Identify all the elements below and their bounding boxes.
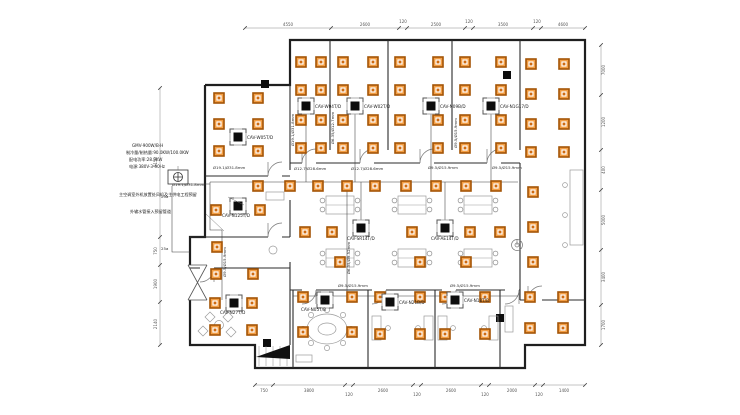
dim-value: 6150	[153, 156, 158, 167]
diffuser-icon	[433, 115, 443, 125]
diffuser-icon	[395, 57, 405, 67]
desk	[570, 170, 583, 245]
unit-label: CAV-N05T/B	[301, 307, 326, 312]
unit-label: CAV-SR14T/D	[347, 236, 375, 241]
workstation-cluster	[392, 249, 432, 267]
spec-line: 电源:380V-3-50Hz	[129, 163, 165, 169]
diffuser-icon	[440, 329, 450, 339]
pipe-label: Ø19.1/Ø31.8mm	[290, 114, 295, 147]
diffuser-icon	[296, 57, 306, 67]
diffuser-icon	[559, 147, 569, 157]
cassette-unit-icon	[423, 98, 439, 114]
dim-value: 2600	[360, 22, 371, 27]
diffuser-icon	[528, 257, 538, 267]
diffuser-icon	[526, 89, 536, 99]
diffuser-icon	[525, 292, 535, 302]
diffuser-icon	[407, 227, 417, 237]
unit-label: CAV-AE14T/D	[431, 236, 459, 241]
dim-value: 120	[345, 392, 353, 397]
diffuser-icon	[214, 119, 224, 129]
diffuser-icon	[253, 119, 263, 129]
diffuser-icon	[526, 59, 536, 69]
pipe-label: Ø9.5/Ø15.9mm	[492, 165, 522, 170]
column	[503, 71, 511, 79]
dim-value: 7000	[601, 64, 606, 75]
column	[261, 80, 269, 88]
diffuser-icon	[495, 227, 505, 237]
diffuser-icon	[559, 59, 569, 69]
diffuser-icon	[285, 181, 295, 191]
unit-label: CAV-N21B/D	[399, 300, 425, 305]
diffuser-icon	[375, 329, 385, 339]
diffuser-icon	[253, 146, 263, 156]
diffuser-icon	[528, 222, 538, 232]
diffuser-icon	[496, 143, 506, 153]
diffuser-icon	[433, 143, 443, 153]
diffuser-icon	[395, 115, 405, 125]
dim-value: 2140	[153, 318, 158, 329]
diffuser-icon	[433, 57, 443, 67]
cassette-unit-icon	[353, 220, 369, 236]
diffuser-icon	[296, 115, 306, 125]
cassette-unit-icon	[226, 295, 242, 311]
diffuser-icon	[368, 57, 378, 67]
pipe-label: Ø9.5/Ø15.9mm	[338, 283, 368, 288]
diffuser-icon	[313, 181, 323, 191]
dim-value: 5000	[601, 214, 606, 225]
diffuser-icon	[338, 57, 348, 67]
workstation-cluster	[392, 196, 432, 214]
diffuser-icon	[347, 327, 357, 337]
dim-value: 2500	[431, 22, 442, 27]
dim-value: 120	[399, 19, 407, 24]
diffuser-icon	[401, 181, 411, 191]
dim-value: 1200	[601, 116, 606, 127]
note: 外输水管接入预留管道	[130, 208, 171, 214]
diffuser-icon	[491, 181, 501, 191]
note: 主空调室外机放置处风机及主供电工程预留	[119, 191, 197, 197]
floor-plan-drawing: CAV-W05T/D CAV-W04T/D CAV-W02T/D CAV-N09…	[0, 0, 740, 415]
diffuser-icon	[496, 115, 506, 125]
diffuser-icon	[214, 93, 224, 103]
dim-value: 120	[535, 392, 543, 397]
dim-value: 3800	[304, 388, 315, 393]
sideboard	[296, 355, 312, 362]
dim-value: 120	[481, 392, 489, 397]
diffuser-icon	[460, 115, 470, 125]
dim-value: 3500	[498, 22, 509, 27]
unit-label: CAV-W05T/D	[247, 135, 273, 140]
unit-label: CAV-N09B/D	[440, 104, 466, 109]
pipe-label: Ø6.35/Ø12.7mm	[330, 112, 335, 145]
cassette-unit-icon	[447, 292, 463, 308]
lobby-table	[269, 246, 277, 254]
pipe-label: Ø9.5/Ø15.9mm	[222, 247, 227, 277]
diffuser-icon	[461, 257, 471, 267]
diffuser-icon	[248, 269, 258, 279]
diffuser-icon	[461, 181, 471, 191]
dim-value: 120	[465, 19, 473, 24]
dim-value: 4550	[283, 22, 294, 27]
dim-value: 2600	[446, 388, 457, 393]
pipe-label: 25a	[161, 246, 169, 251]
spec-line: 制冷量/制热量:90.0KW/100.0KW	[126, 149, 189, 155]
diffuser-icon	[316, 143, 326, 153]
stair-area	[256, 345, 290, 366]
column	[496, 314, 504, 322]
diffuser-icon	[496, 57, 506, 67]
dimension-right: 7000 1200 400 5000 3400 1700	[599, 43, 606, 347]
diffuser-icon	[296, 143, 306, 153]
diffuser-icon	[480, 329, 490, 339]
diffuser-icon	[298, 327, 308, 337]
diffuser-icon	[316, 57, 326, 67]
cassette-unit-icon	[437, 220, 453, 236]
dim-value: 120	[413, 392, 421, 397]
workstation-cluster	[320, 196, 360, 214]
diffuser-icon	[253, 93, 263, 103]
cassette-unit-icon	[317, 292, 333, 308]
pipe-label: Ø6.35/Ø9.52mm	[346, 242, 351, 275]
spec-line: GMV-900W/B-H	[132, 143, 163, 148]
unit-label: CAV-W02T/D	[364, 104, 390, 109]
cassette-unit-icon	[230, 129, 246, 145]
diffuser-icon	[465, 227, 475, 237]
diffuser-icon	[368, 85, 378, 95]
unit-label: CAV-N1G17/D	[500, 104, 529, 109]
diffuser-icon	[460, 143, 470, 153]
desk	[505, 306, 513, 332]
diffuser-icon	[211, 269, 221, 279]
diffuser-icon	[253, 181, 263, 191]
diffuser-icon	[296, 85, 306, 95]
pipe-label: Ø9.5/Ø15.9mm	[428, 165, 458, 170]
dim-value: 2600	[378, 388, 389, 393]
diffuser-icon	[255, 205, 265, 215]
dim-value: 1400	[559, 388, 570, 393]
spiral-stair-icon	[512, 239, 523, 251]
diffuser-icon	[395, 143, 405, 153]
diffuser-icon	[460, 57, 470, 67]
annotations: 主空调室外机放置处风机及主供电工程预留 外输水管接入预留管道	[119, 191, 244, 231]
cassette-unit-icon	[347, 98, 363, 114]
dim-value: 400	[601, 166, 606, 174]
diffuser-icon	[298, 292, 308, 302]
pipe-label: Ø12.7/Ø28.6mm	[351, 166, 384, 171]
dim-value: 2000	[507, 388, 518, 393]
pipe-label: Ø9.5/Ø15.9mm	[453, 118, 458, 148]
diffuser-icon	[558, 323, 568, 333]
dimension-left: 6150 750 1900 2140	[153, 86, 162, 347]
diffuser-icon	[496, 85, 506, 95]
diffuser-icon	[395, 85, 405, 95]
meeting-table	[307, 314, 347, 344]
diffuser-icon	[300, 227, 310, 237]
diffuser-icon	[559, 119, 569, 129]
diffuser-icon	[460, 85, 470, 95]
unit-label: CAV-W04T/D	[315, 104, 341, 109]
diffuser-icon	[211, 205, 221, 215]
diffuser-icon	[210, 298, 220, 308]
diffuser-icon	[247, 298, 257, 308]
diffuser-icon	[342, 181, 352, 191]
pipe-label: Ø12.7/Ø28.6mm	[294, 166, 327, 171]
diffuser-icon	[214, 146, 224, 156]
diffuser-icon	[347, 292, 357, 302]
dim-value: 3400	[601, 271, 606, 282]
pipe-label: Ø19.1/Ø31.8mm	[213, 165, 246, 170]
dim-value: 1900	[153, 278, 158, 289]
diffuser-icon	[433, 85, 443, 95]
entrance-double-door	[188, 265, 207, 300]
diffuser-icon	[338, 85, 348, 95]
cassette-unit-icon	[382, 294, 398, 310]
diffuser-icon	[327, 227, 337, 237]
diffuser-icon	[335, 257, 345, 267]
dim-value: 750	[153, 247, 158, 255]
diffuser-icon	[525, 323, 535, 333]
dim-value: 4600	[558, 22, 569, 27]
dimension-top: 4550 2600 120 2500 120 3500 120 4600	[243, 19, 587, 30]
dim-value: 750	[260, 388, 268, 393]
diffuser-icon	[431, 181, 441, 191]
diffuser-icon	[368, 115, 378, 125]
diffuser-icon	[370, 181, 380, 191]
dim-value: 1700	[601, 319, 606, 330]
diffuser-icon	[415, 257, 425, 267]
unit-label: CAV-N125T/D	[222, 213, 250, 218]
diffuser-icon	[528, 187, 538, 197]
diffuser-icon	[338, 143, 348, 153]
workstation-cluster	[458, 196, 498, 214]
diffuser-icon	[316, 115, 326, 125]
diffuser-icon	[559, 89, 569, 99]
diffuser-icon	[247, 325, 257, 335]
diffuser-icon	[316, 85, 326, 95]
cassette-unit-icon	[230, 198, 246, 214]
cassette-unit-icon	[483, 98, 499, 114]
cad-floor-plan-page: CAV-W05T/D CAV-W04T/D CAV-W02T/D CAV-N09…	[0, 0, 740, 415]
door-swings	[200, 149, 542, 304]
diffuser-icon	[210, 325, 220, 335]
diffuser-icon	[526, 119, 536, 129]
unit-label: CAV-N18T/B	[464, 298, 489, 303]
diffuser-icon	[338, 115, 348, 125]
diffuser-icon	[526, 147, 536, 157]
diffuser-icon	[212, 242, 222, 252]
diffuser-icon	[368, 143, 378, 153]
cassette-unit-icon	[298, 98, 314, 114]
pipe-label: Ø19.1/Ø31.8mm	[172, 182, 205, 187]
diffuser-icon	[558, 292, 568, 302]
dimension-bottom: 750 3800 120 2600 120 2600 120 2000 120 …	[253, 383, 587, 397]
diffuser-icon	[415, 329, 425, 339]
column	[263, 339, 271, 347]
pipe-label: Ø9.5/Ø15.9mm	[450, 283, 480, 288]
unit-label: CAV-N27T/D	[220, 310, 245, 315]
dim-value: 120	[533, 19, 541, 24]
desk	[266, 192, 284, 200]
